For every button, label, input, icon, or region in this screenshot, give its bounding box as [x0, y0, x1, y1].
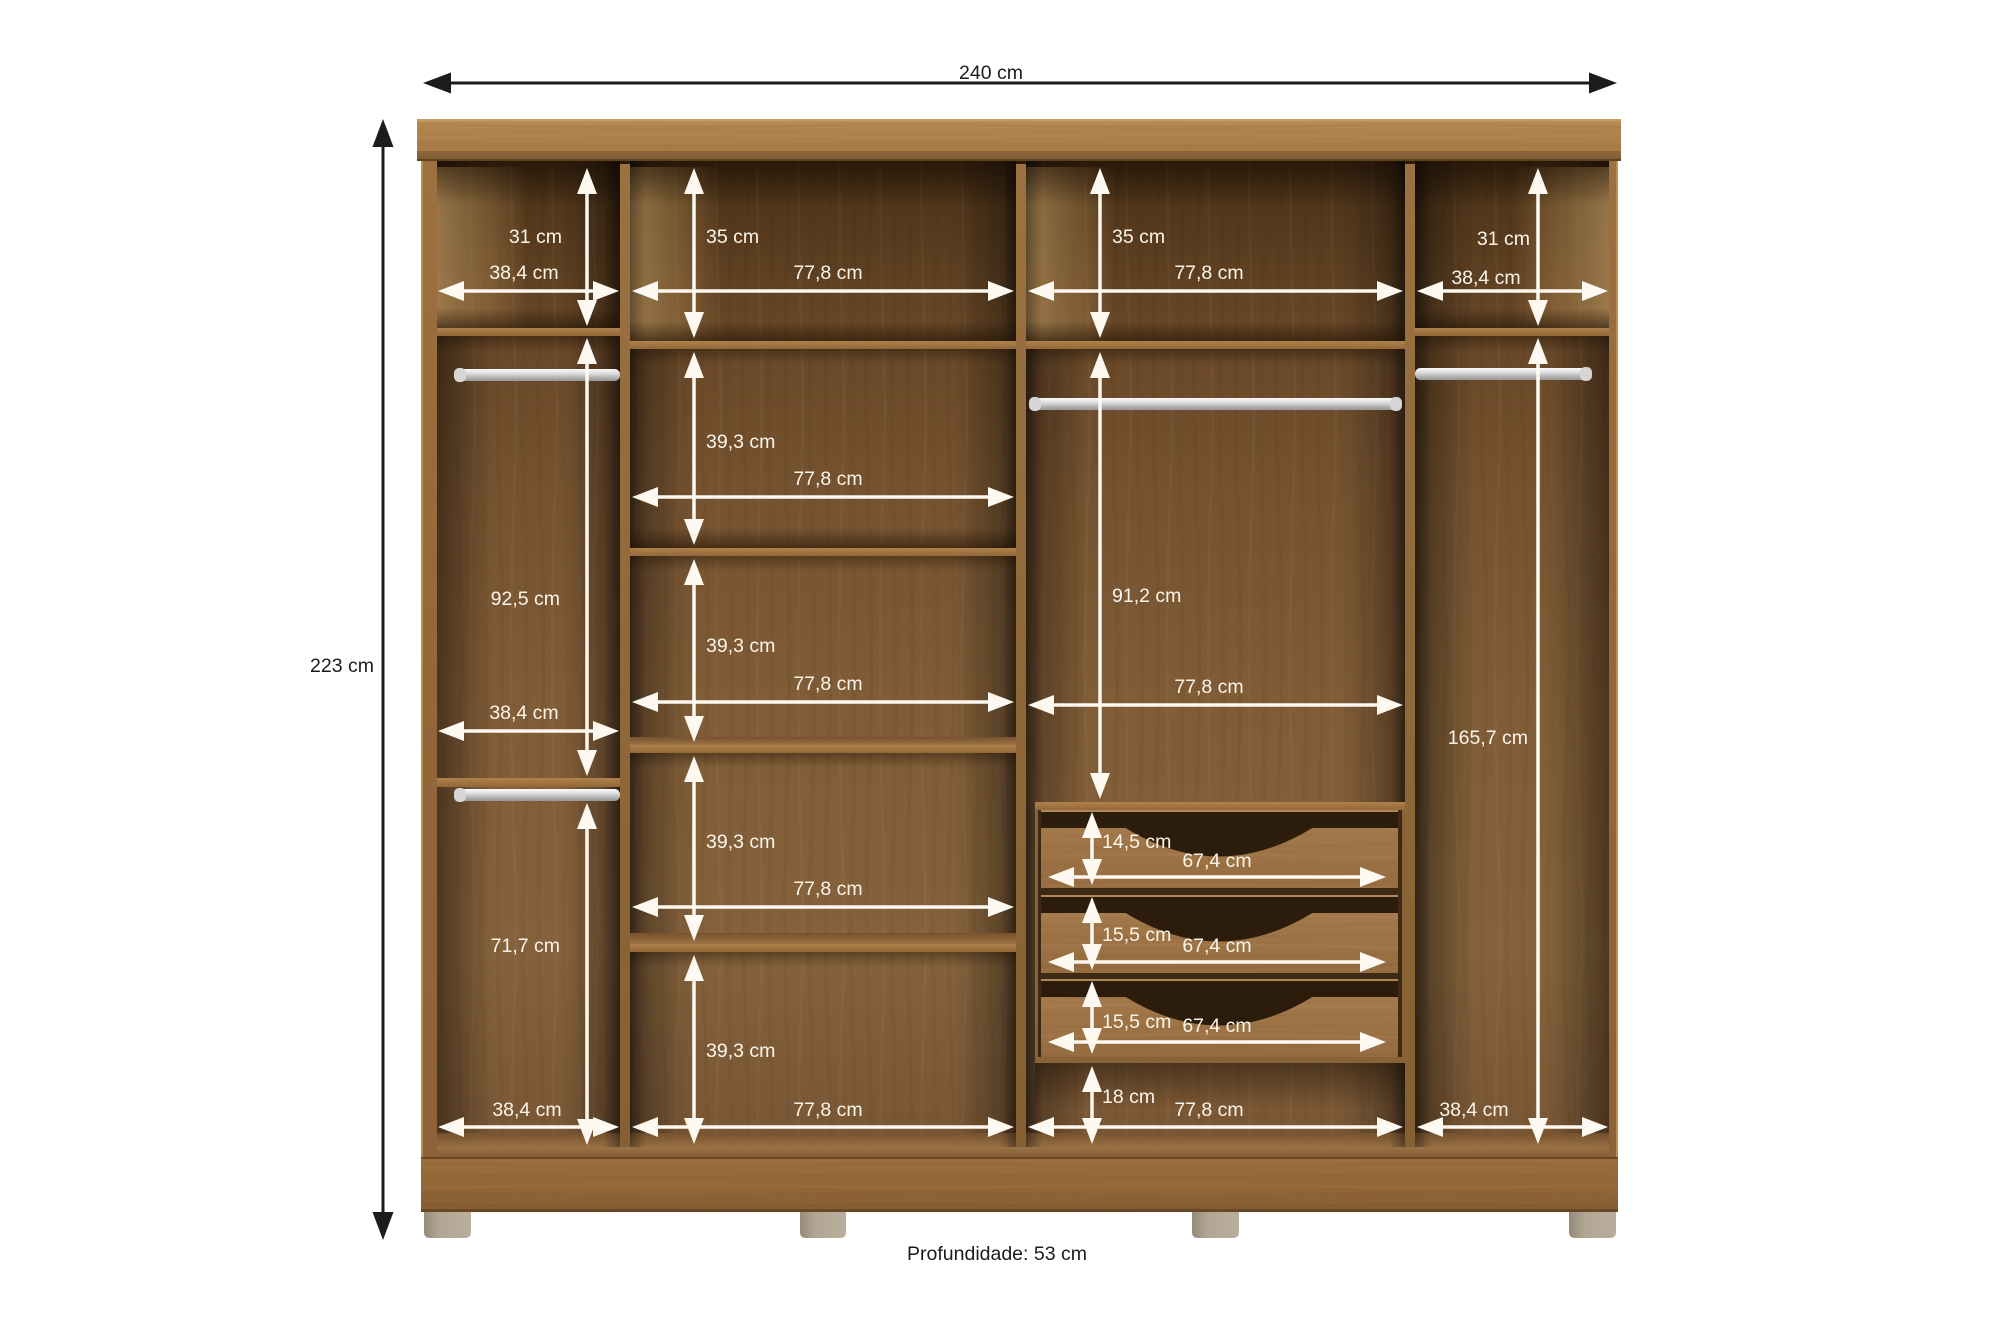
svg-text:92,5 cm: 92,5 cm: [491, 588, 560, 610]
svg-text:77,8 cm: 77,8 cm: [793, 468, 862, 490]
svg-text:77,8 cm: 77,8 cm: [793, 673, 862, 695]
svg-text:38,4 cm: 38,4 cm: [1439, 1099, 1508, 1121]
svg-text:223 cm: 223 cm: [310, 655, 374, 677]
svg-text:71,7 cm: 71,7 cm: [491, 935, 560, 957]
svg-text:18 cm: 18 cm: [1102, 1086, 1155, 1108]
svg-text:77,8 cm: 77,8 cm: [793, 262, 862, 284]
svg-text:15,5 cm: 15,5 cm: [1102, 1011, 1171, 1033]
svg-text:39,3 cm: 39,3 cm: [706, 431, 775, 453]
svg-text:67,4 cm: 67,4 cm: [1182, 935, 1251, 957]
svg-text:39,3 cm: 39,3 cm: [706, 635, 775, 657]
svg-text:31 cm: 31 cm: [509, 226, 562, 248]
svg-text:35 cm: 35 cm: [706, 226, 759, 248]
svg-text:77,8 cm: 77,8 cm: [1174, 676, 1243, 698]
svg-text:38,4 cm: 38,4 cm: [489, 262, 558, 284]
svg-text:39,3 cm: 39,3 cm: [706, 1040, 775, 1062]
svg-text:77,8 cm: 77,8 cm: [1174, 262, 1243, 284]
svg-text:38,4 cm: 38,4 cm: [489, 702, 558, 724]
svg-text:165,7 cm: 165,7 cm: [1448, 727, 1528, 749]
svg-text:77,8 cm: 77,8 cm: [793, 878, 862, 900]
svg-text:91,2 cm: 91,2 cm: [1112, 585, 1181, 607]
svg-text:31 cm: 31 cm: [1477, 228, 1530, 250]
svg-text:35 cm: 35 cm: [1112, 226, 1165, 248]
svg-text:67,4 cm: 67,4 cm: [1182, 850, 1251, 872]
svg-text:38,4 cm: 38,4 cm: [492, 1099, 561, 1121]
svg-text:39,3 cm: 39,3 cm: [706, 831, 775, 853]
svg-text:240 cm: 240 cm: [959, 62, 1023, 84]
svg-text:77,8 cm: 77,8 cm: [1174, 1099, 1243, 1121]
svg-text:15,5 cm: 15,5 cm: [1102, 924, 1171, 946]
svg-text:Profundidade: 53 cm: Profundidade: 53 cm: [907, 1243, 1087, 1265]
svg-text:38,4 cm: 38,4 cm: [1451, 267, 1520, 289]
svg-text:14,5 cm: 14,5 cm: [1102, 831, 1171, 853]
svg-text:77,8 cm: 77,8 cm: [793, 1099, 862, 1121]
svg-text:67,4 cm: 67,4 cm: [1182, 1015, 1251, 1037]
